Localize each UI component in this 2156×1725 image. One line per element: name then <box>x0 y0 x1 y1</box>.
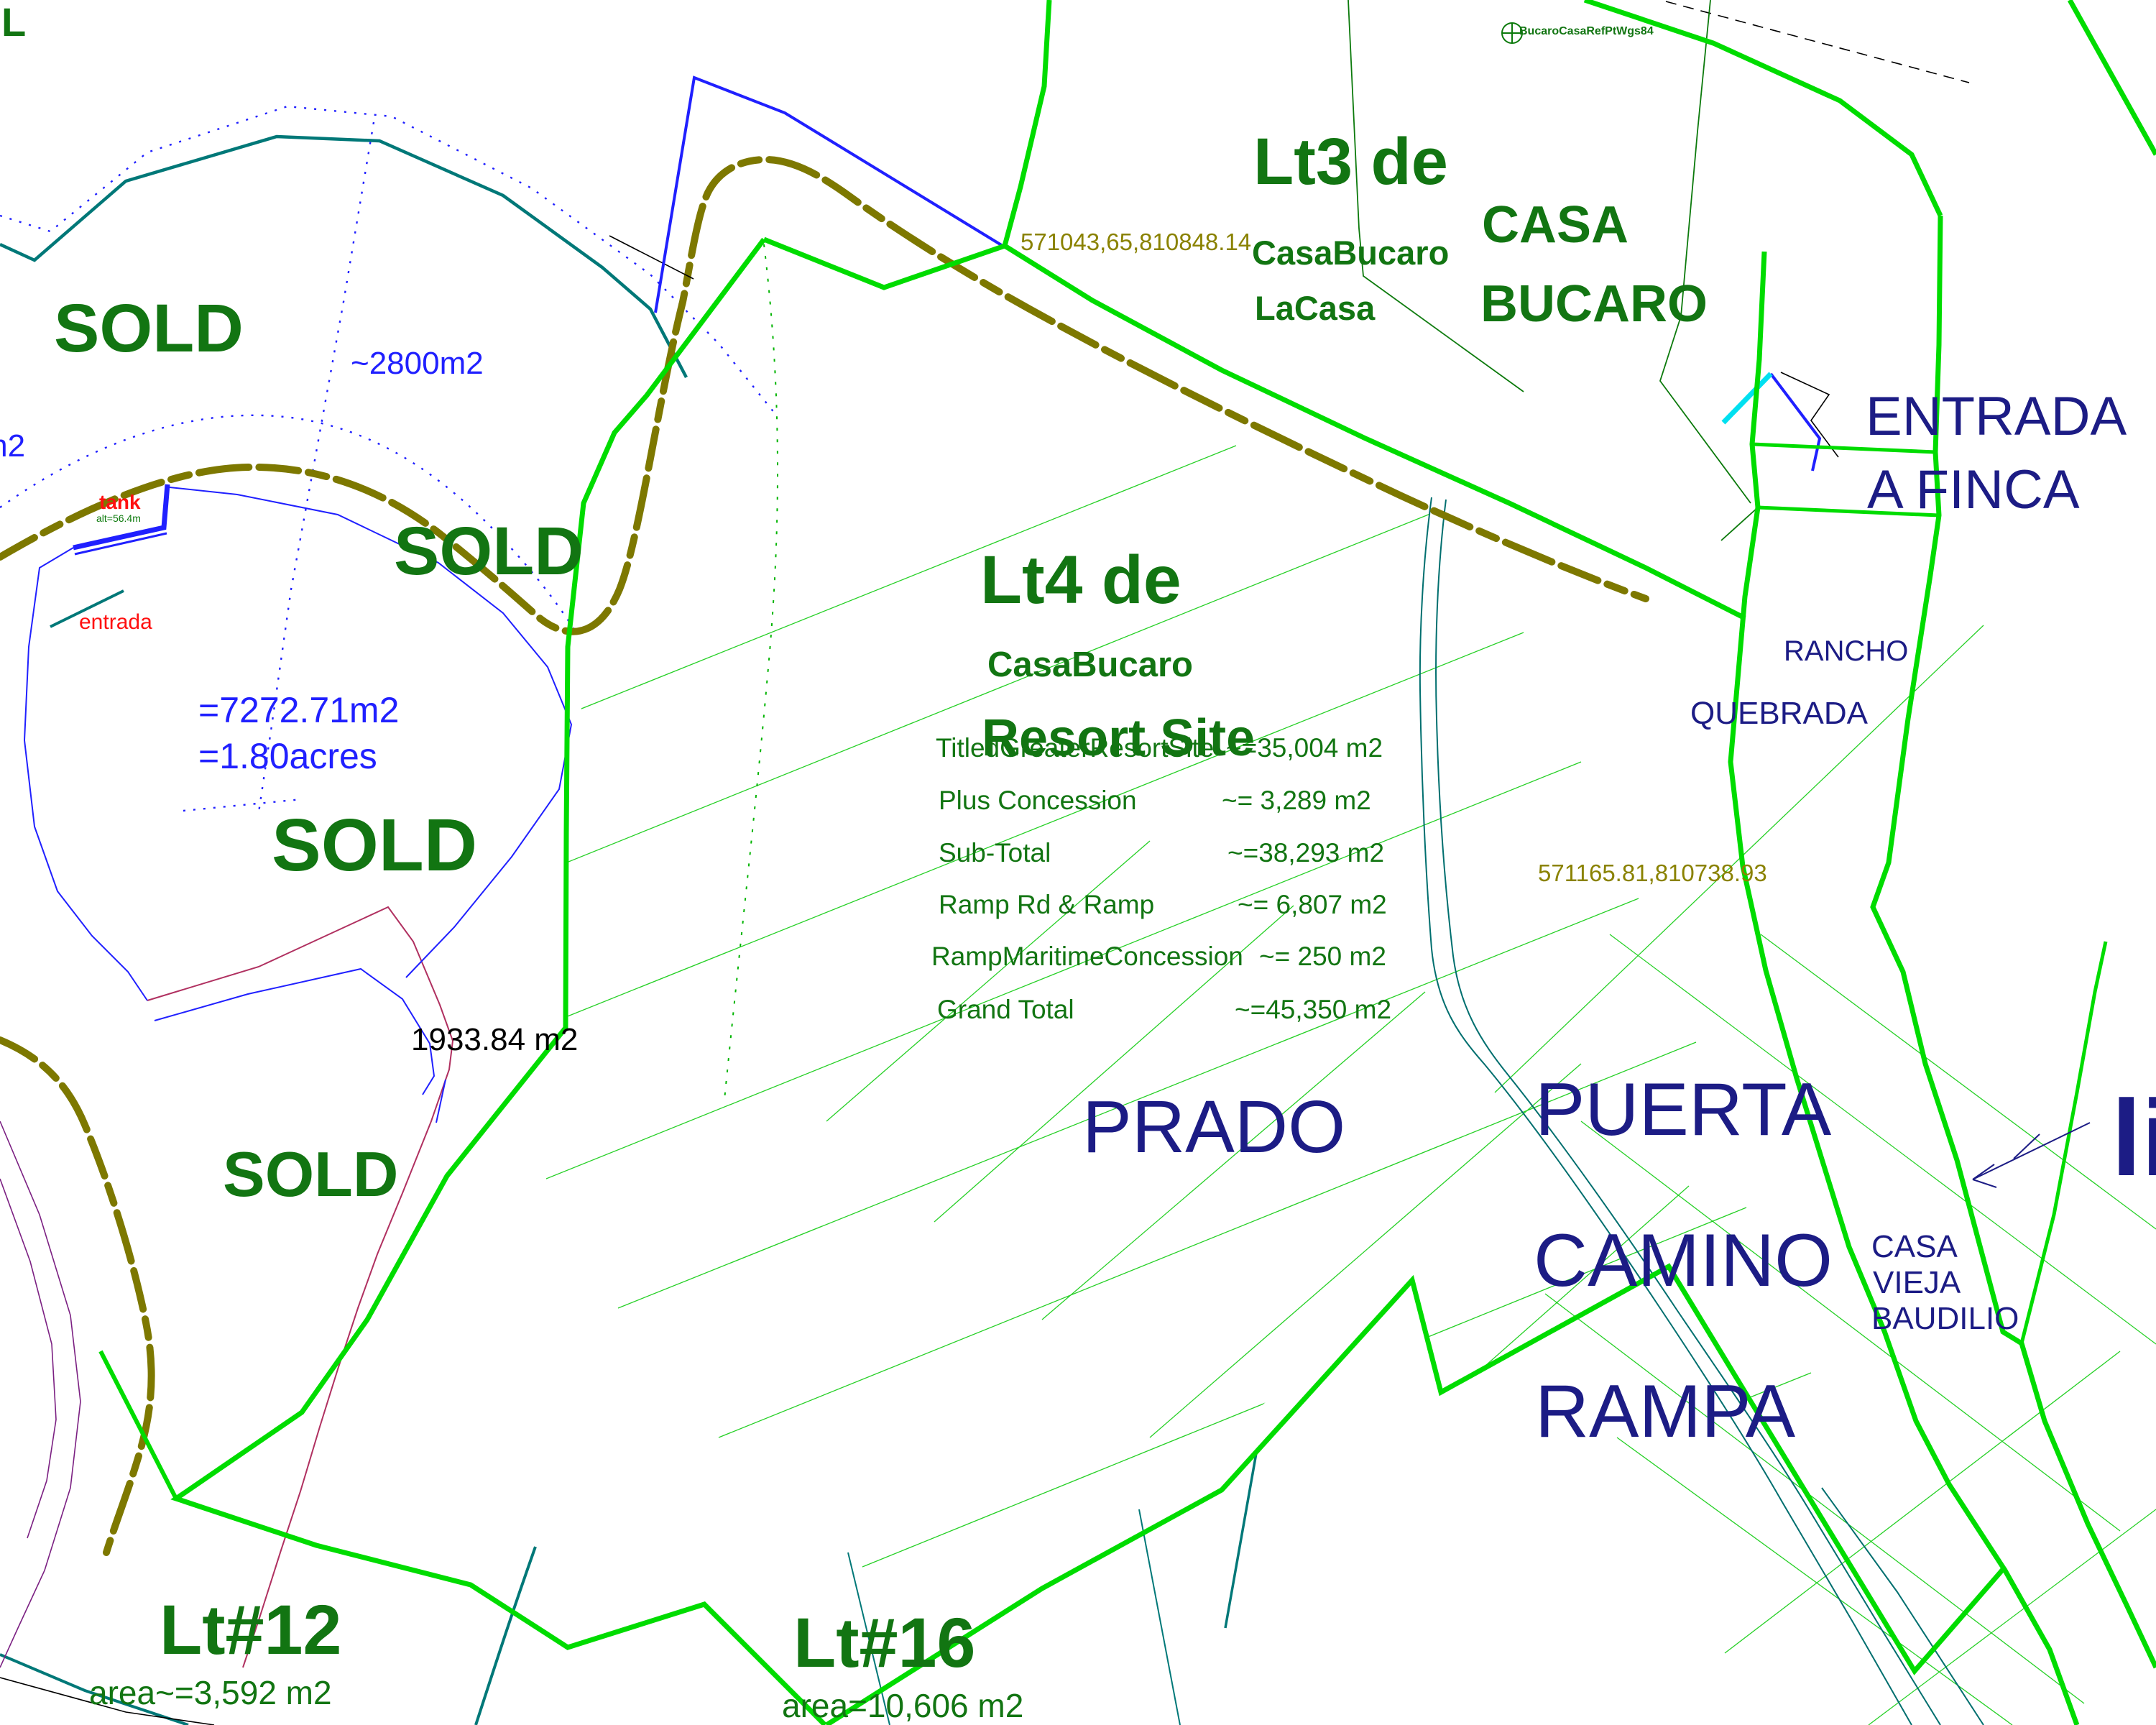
area-1933-label: 1933.84 m2 <box>411 1023 578 1057</box>
tank-label: tank <box>99 492 141 512</box>
ref-point-label: BucaroCasaRefPtWgs84 <box>1519 26 1654 38</box>
table-row-label: Sub-Total <box>939 839 1051 867</box>
rancho-label: RANCHO <box>1784 637 1908 667</box>
table-row-label: Ramp Rd & Ramp <box>939 891 1154 919</box>
casa-vieja-line3: BAUDILIO <box>1871 1302 2019 1335</box>
teal-contour-lines <box>0 137 1256 1725</box>
rampa-label: RAMPA <box>1535 1373 1795 1450</box>
parcel-hatch-lines <box>431 446 1811 1682</box>
entrada-finca-line2: A FINCA <box>1867 461 2080 518</box>
lt3-line3: LaCasa <box>1255 291 1375 326</box>
corner-partial-label: L <box>1 1 26 43</box>
prado-label: PRADO <box>1082 1088 1345 1165</box>
entrada-label: entrada <box>79 611 152 633</box>
quebrada-label: QUEBRADA <box>1690 697 1868 730</box>
area-7272-label: =7272.71m2 <box>198 691 399 729</box>
table-row-label: TitledGreaterResortSite <box>936 735 1214 762</box>
entrada-finca-line1: ENTRADA <box>1866 388 2127 445</box>
m2-partial-label: m2 <box>0 430 25 463</box>
lt3-line2: CasaBucaro <box>1252 236 1449 271</box>
sold-label-4: SOLD <box>223 1141 398 1207</box>
lt16-area-label: area=10,606 m2 <box>782 1689 1023 1724</box>
table-row-value: ~=38,293 m2 <box>1227 839 1384 867</box>
lt12-title: Lt#12 <box>160 1594 341 1667</box>
arrow-icon <box>1973 1123 2090 1187</box>
area-acres-label: =1.80acres <box>198 737 377 775</box>
table-row-value: ~=35,004 m2 <box>1226 735 1383 762</box>
table-row-value: ~=45,350 m2 <box>1235 996 1391 1023</box>
lt4-title: Lt4 de <box>980 545 1181 616</box>
olive-road <box>0 160 1646 1552</box>
cyan-segment <box>1723 374 1771 423</box>
casa-bucaro-line1: CASA <box>1482 198 1628 252</box>
dotted-green-line <box>724 244 778 1100</box>
crimson-parcel-line <box>147 907 453 1667</box>
lt16-title: Lt#16 <box>793 1607 975 1680</box>
casa-vieja-line2: VIEJA <box>1873 1266 1961 1299</box>
tank-alt-label: alt=56.4m <box>96 513 141 524</box>
table-row-value: ~= 250 m2 <box>1259 943 1386 970</box>
lt12-area-label: area~=3,592 m2 <box>89 1676 332 1711</box>
coordinate-label-2: 571165.81,810738.93 <box>1538 861 1767 885</box>
survey-plat-map: L SOLD SOLD SOLD SOLD ~2800m2 m2 tank al… <box>0 0 2156 1725</box>
li-partial-label: li <box>2111 1082 2156 1194</box>
purple-lines <box>0 1121 80 1667</box>
camino-label: CAMINO <box>1534 1222 1833 1299</box>
casa-vieja-line1: CASA <box>1871 1230 1958 1264</box>
coordinate-label-1: 571043,65,810848.14 <box>1021 230 1251 254</box>
area-2800-label: ~2800m2 <box>351 347 484 380</box>
lt3-title: Lt3 de <box>1253 128 1448 197</box>
table-row-value: ~= 6,807 m2 <box>1238 891 1387 919</box>
table-row-value: ~= 3,289 m2 <box>1222 787 1371 814</box>
casa-bucaro-line2: BUCARO <box>1480 277 1708 331</box>
table-row-label: Grand Total <box>937 996 1074 1023</box>
puerta-label: PUERTA <box>1535 1071 1831 1149</box>
sold-label-3: SOLD <box>272 806 477 883</box>
lt4-line2: CasaBucaro <box>987 647 1193 684</box>
sold-label-1: SOLD <box>54 293 244 364</box>
table-row-label: Plus Concession <box>939 787 1137 814</box>
table-row-label: RampMaritimeConcession <box>931 943 1243 970</box>
sold-label-2: SOLD <box>394 516 584 587</box>
